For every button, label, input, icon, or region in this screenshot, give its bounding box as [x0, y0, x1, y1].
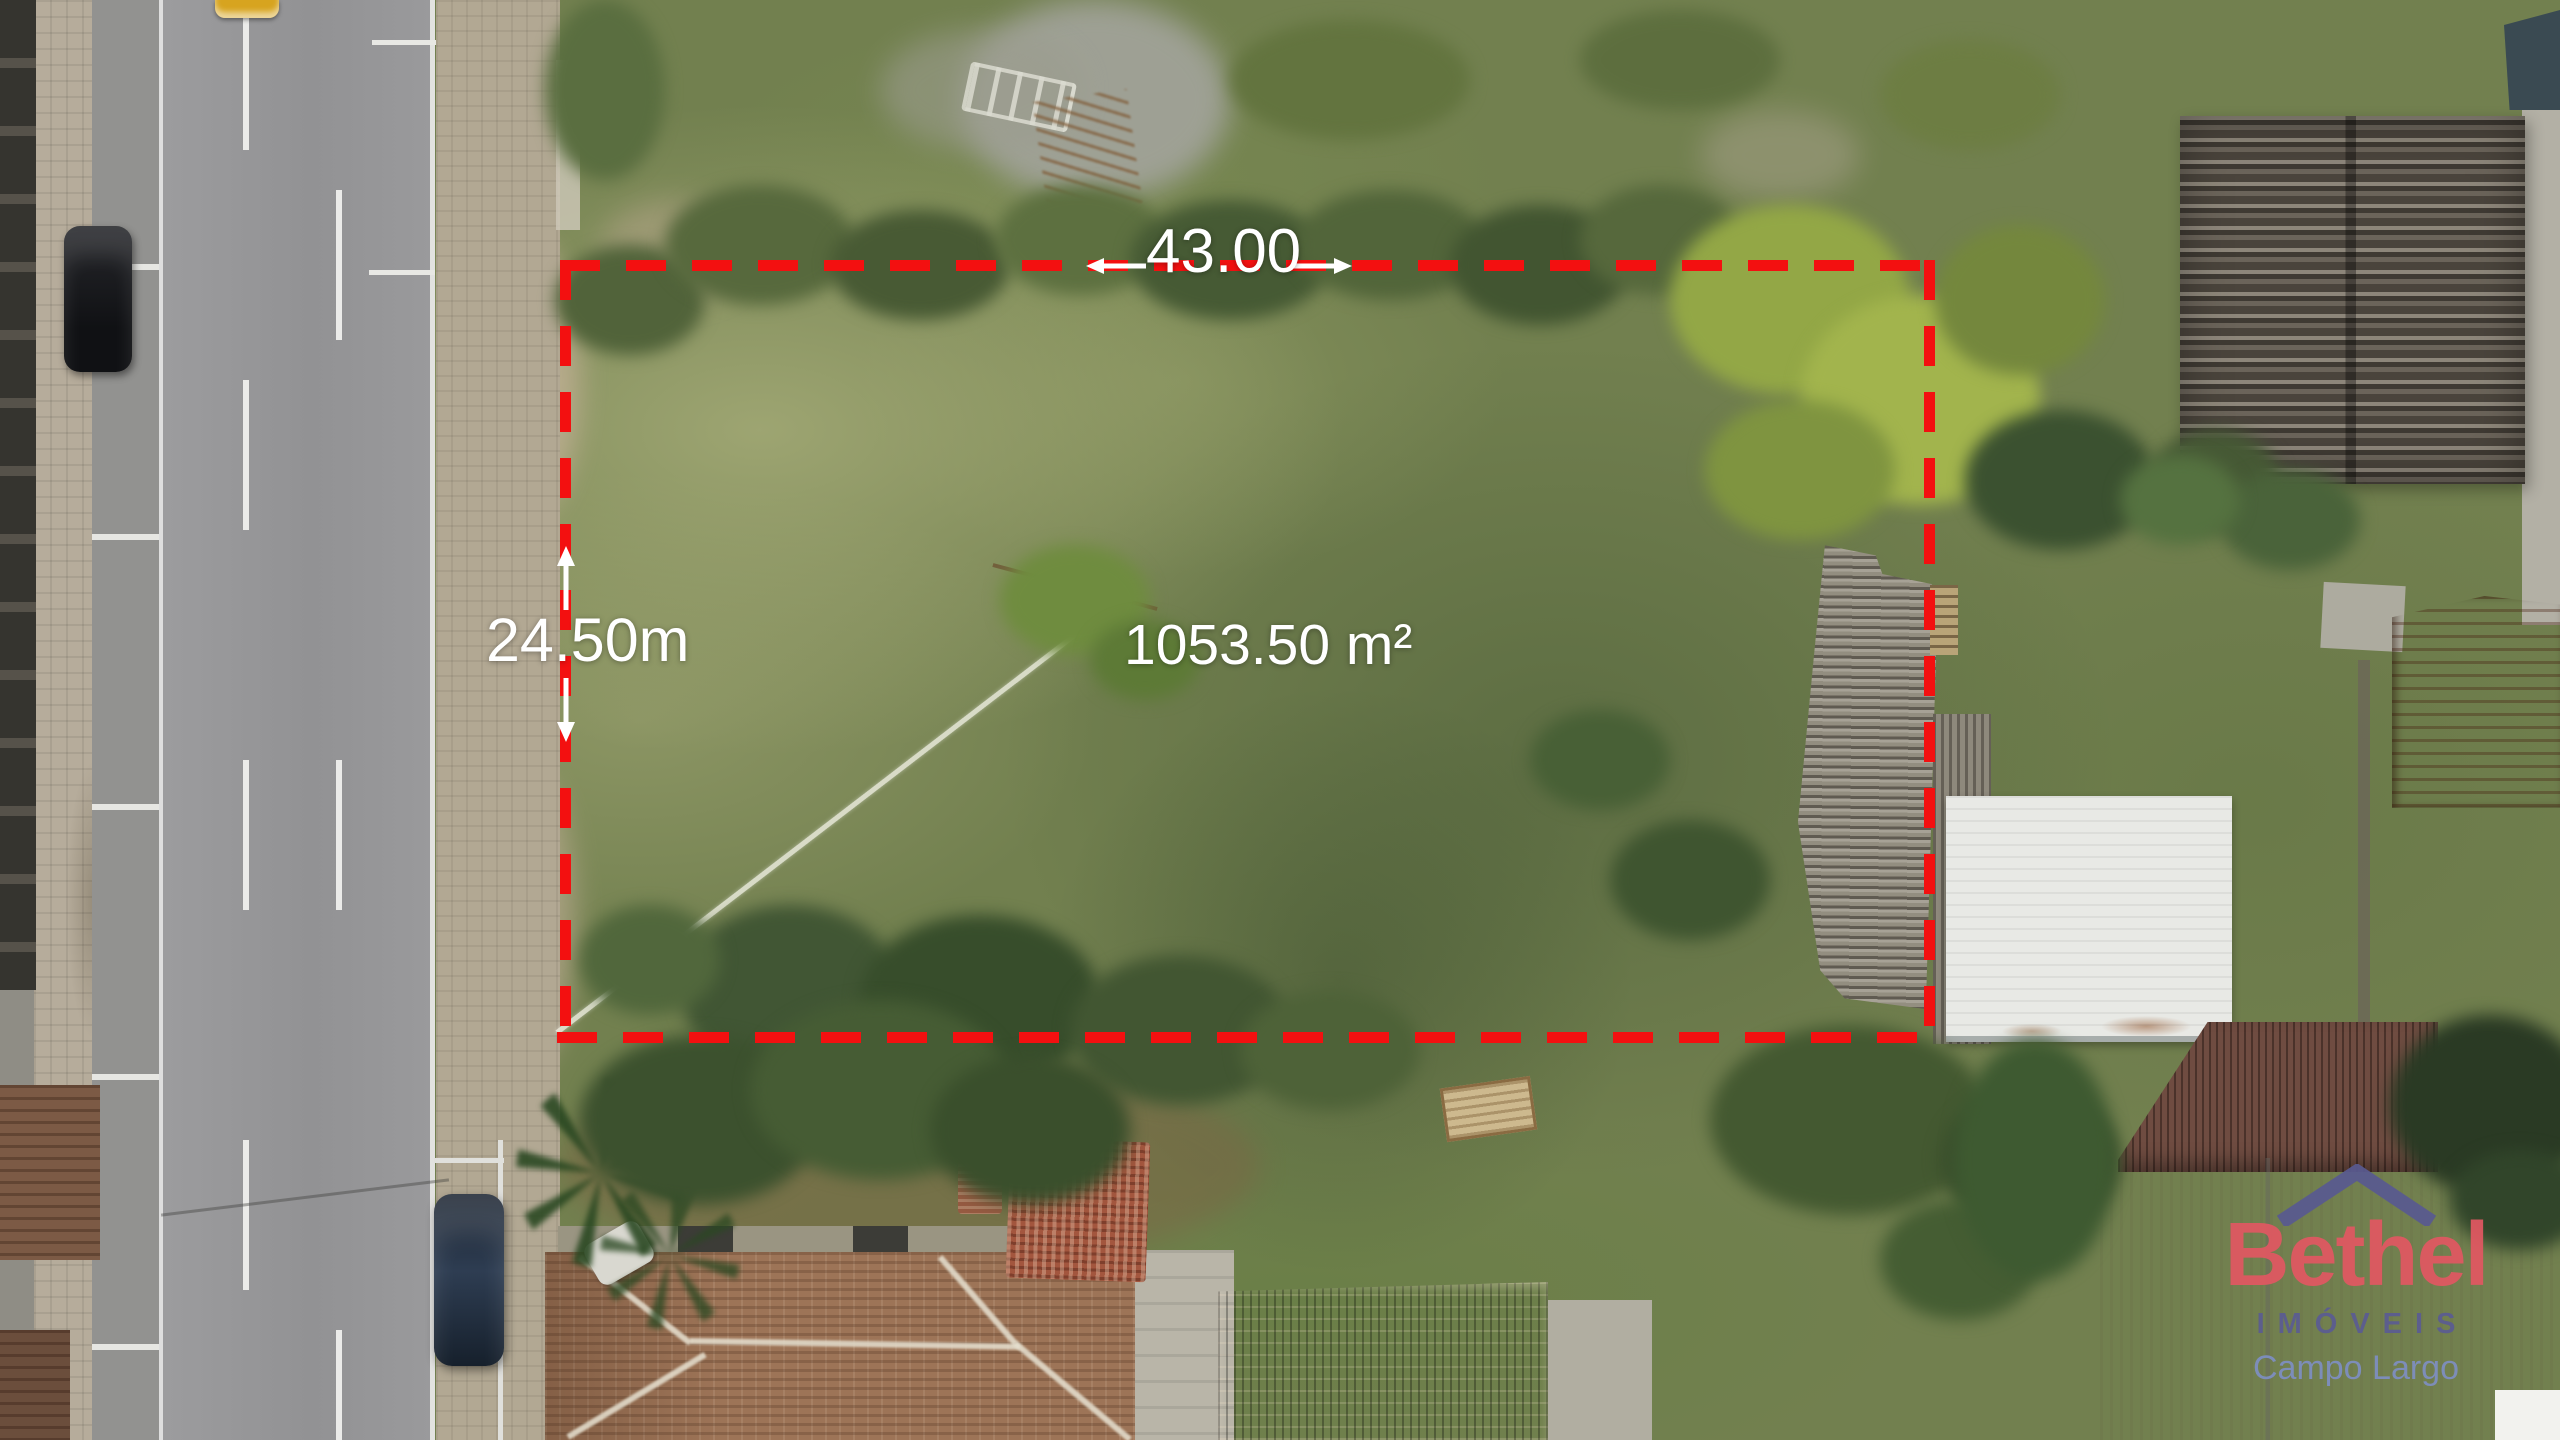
dirt-patch	[1700, 110, 1860, 200]
rooftops-left-strip	[0, 0, 36, 990]
lane-divider-dashes	[336, 0, 342, 1440]
terracotta-roof-house	[2392, 596, 2560, 808]
parking-lane-left	[92, 0, 162, 1440]
corrugated-warehouse-roof	[2180, 116, 2525, 484]
bush	[1610, 820, 1770, 940]
brown-roof-bottom-left	[0, 1085, 100, 1260]
watermark-subtitle-text: IMÓVEIS	[2186, 1308, 2526, 1341]
depth-arrow-up-icon	[553, 544, 579, 612]
width-dimension-label: 43.00	[1146, 221, 1301, 283]
concrete-pad	[1548, 1300, 1652, 1440]
area-label: 1053.50 m²	[1124, 617, 1412, 674]
parking-bay-line	[369, 270, 435, 275]
concrete-strip-right-edge	[2522, 55, 2560, 625]
bush	[545, 0, 665, 180]
road-edge-line	[159, 0, 163, 1440]
tree-canopy	[930, 1055, 1130, 1205]
red-tile-roof-bottom-center	[1218, 1282, 1548, 1440]
bush	[1880, 40, 2060, 150]
taxi-car	[215, 0, 279, 18]
width-arrow-left-icon	[1084, 255, 1148, 277]
tree-canopy	[1935, 225, 2105, 375]
boundary-line-right	[1924, 260, 1935, 1043]
bush	[2120, 455, 2240, 545]
street-asphalt	[162, 0, 434, 1440]
parked-black-car	[64, 226, 132, 372]
bush	[1580, 10, 1780, 110]
bush	[1955, 1040, 2115, 1280]
realtor-watermark: Bethel IMÓVEIS Campo Largo	[2186, 1164, 2526, 1388]
parking-bay-line	[434, 1158, 504, 1163]
bush	[1530, 710, 1670, 810]
lane-divider-dashes	[243, 0, 249, 1440]
yellow-green-tree	[1705, 400, 1895, 540]
fence-line	[2358, 660, 2370, 1040]
watermark-location-text: Campo Largo	[2186, 1349, 2526, 1388]
watermark-brand-text: Bethel	[2186, 1210, 2526, 1300]
boundary-line-bottom	[557, 1032, 1935, 1043]
brown-roof-bottom-left	[0, 1330, 70, 1440]
depth-arrow-down-icon	[553, 676, 579, 744]
bush	[1230, 20, 1470, 140]
parked-navy-car	[434, 1194, 504, 1366]
bush	[2220, 470, 2360, 570]
depth-dimension-label: 24.50m	[486, 610, 689, 671]
tree-canopy	[665, 185, 855, 305]
parking-bay-line	[372, 40, 436, 45]
aerial-photo-scene: 43.00 24.50m 1053.50 m² Bethel IMÓVEIS C…	[0, 0, 2560, 1440]
tree-canopy	[1240, 990, 1420, 1110]
teal-roof-corner	[2504, 10, 2560, 110]
white-metal-roof	[1946, 796, 2232, 1042]
tree-canopy	[580, 905, 720, 1015]
white-building-wing	[2495, 1390, 2560, 1440]
